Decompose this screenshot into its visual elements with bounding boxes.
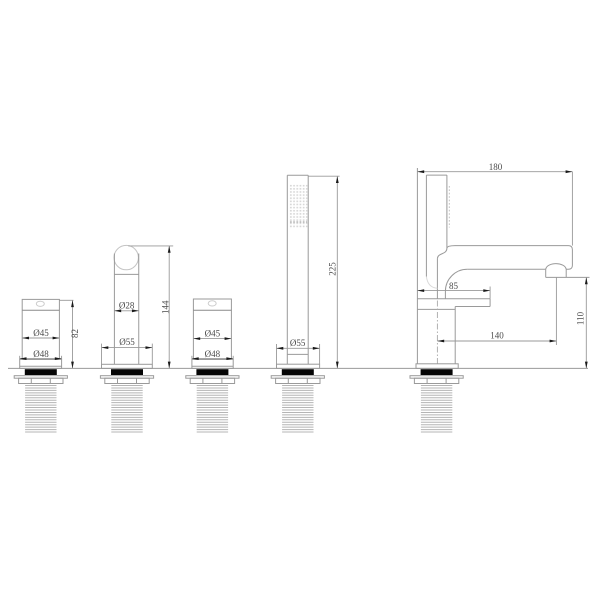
svg-text:85: 85 (449, 281, 459, 291)
svg-text:144: 144 (160, 300, 170, 314)
svg-text:110: 110 (575, 311, 585, 325)
svg-text:225: 225 (328, 262, 338, 276)
svg-text:Ø55: Ø55 (290, 338, 306, 348)
svg-text:Ø45: Ø45 (205, 329, 221, 339)
svg-text:Ø48: Ø48 (33, 349, 49, 359)
svg-text:Ø48: Ø48 (205, 349, 221, 359)
svg-text:Ø45: Ø45 (33, 328, 49, 338)
svg-text:Ø55: Ø55 (119, 337, 135, 347)
svg-text:180: 180 (489, 162, 503, 172)
svg-text:140: 140 (490, 331, 504, 341)
svg-text:Ø28: Ø28 (119, 301, 135, 311)
svg-text:82: 82 (70, 329, 80, 338)
